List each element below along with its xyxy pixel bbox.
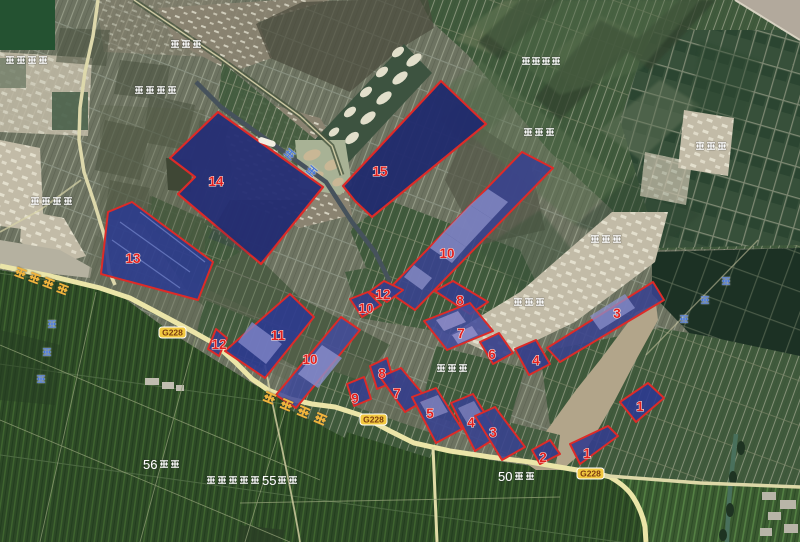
svg-text:55: 55 — [262, 473, 276, 488]
svg-text:11: 11 — [271, 328, 286, 343]
svg-text:10: 10 — [358, 301, 373, 316]
svg-text:5: 5 — [426, 406, 434, 421]
svg-text:10: 10 — [439, 246, 454, 261]
svg-text:2: 2 — [539, 450, 547, 465]
svg-text:G228: G228 — [363, 415, 384, 425]
svg-text:6: 6 — [488, 347, 496, 362]
svg-text:15: 15 — [372, 164, 388, 179]
svg-text:13: 13 — [125, 251, 141, 266]
svg-text:9: 9 — [351, 391, 359, 406]
svg-text:3: 3 — [613, 306, 621, 321]
svg-text:4: 4 — [467, 415, 475, 430]
svg-text:3: 3 — [489, 425, 497, 440]
svg-text:14: 14 — [208, 174, 224, 189]
svg-text:4: 4 — [532, 353, 540, 368]
svg-text:8: 8 — [378, 366, 386, 381]
svg-text:8: 8 — [456, 293, 464, 308]
svg-text:1: 1 — [636, 399, 644, 414]
svg-text:12: 12 — [375, 287, 390, 302]
svg-text:1: 1 — [583, 446, 591, 461]
svg-text:G228: G228 — [580, 469, 601, 479]
svg-text:12: 12 — [211, 337, 226, 352]
svg-text:56: 56 — [143, 457, 157, 472]
svg-text:10: 10 — [302, 352, 317, 367]
svg-text:7: 7 — [393, 386, 401, 401]
svg-text:7: 7 — [457, 326, 465, 341]
svg-text:G228: G228 — [162, 328, 183, 338]
svg-text:50: 50 — [498, 469, 512, 484]
